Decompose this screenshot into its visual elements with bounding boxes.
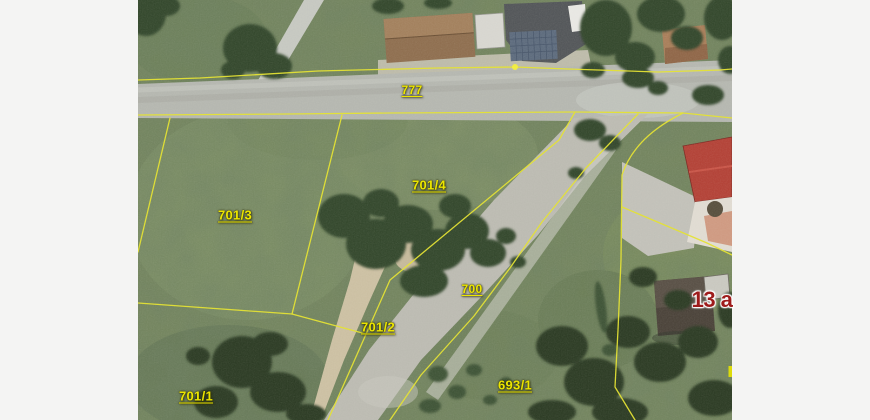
aerial-imagery bbox=[138, 0, 732, 420]
map-viewport[interactable]: 777701/4701/3700701/2693/1701/113 a bbox=[0, 0, 870, 420]
canvas-margin-right bbox=[732, 0, 870, 420]
boundary-vertex-marker bbox=[512, 64, 518, 70]
photo-grain bbox=[138, 0, 732, 420]
canvas-margin-left bbox=[0, 0, 138, 420]
clipped-label-fragment bbox=[729, 366, 733, 377]
